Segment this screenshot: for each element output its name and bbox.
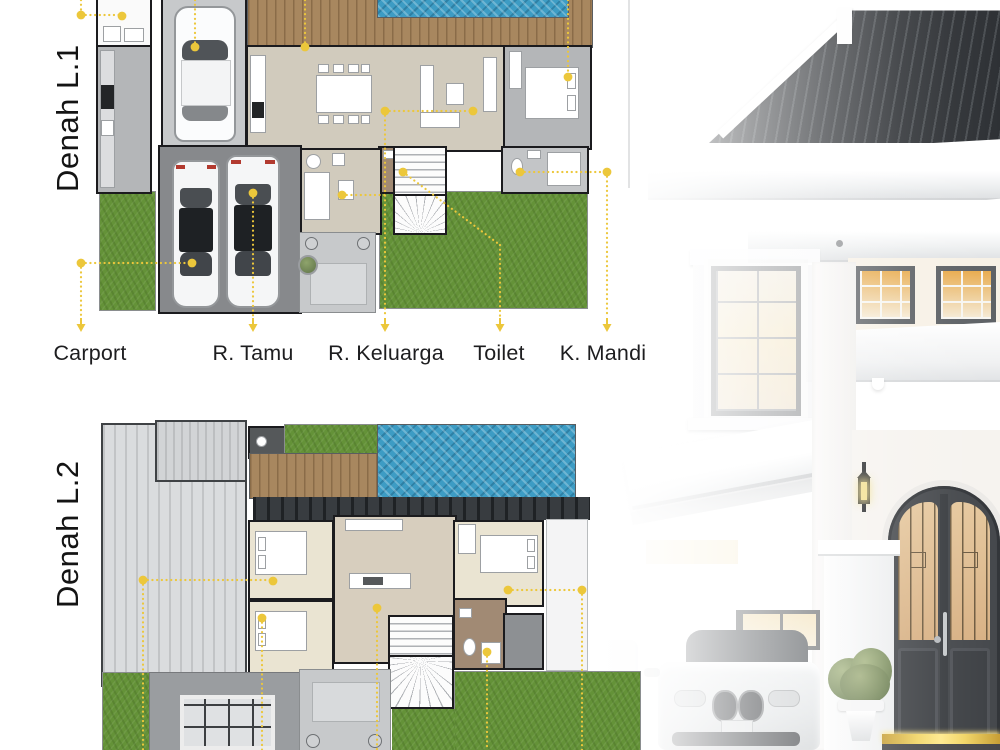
stairs-l2-winder bbox=[390, 657, 452, 707]
door-grille-motif-right bbox=[962, 552, 978, 568]
grass-top bbox=[285, 425, 377, 454]
grass-left bbox=[100, 192, 155, 310]
house-render-photo bbox=[600, 0, 1000, 750]
car-grille-right bbox=[738, 690, 764, 722]
plan-label-kmandi: K. Mandi bbox=[560, 341, 646, 366]
car bbox=[628, 628, 820, 750]
terrace-strip bbox=[547, 520, 587, 670]
carport-car-1 bbox=[172, 160, 220, 308]
car-headlight-right bbox=[768, 690, 800, 707]
master-bedroom-l2 bbox=[455, 522, 542, 605]
door-panel-left bbox=[898, 648, 938, 742]
living-dining-room bbox=[248, 47, 505, 150]
carport bbox=[160, 147, 300, 312]
stairs-l2 bbox=[390, 617, 452, 657]
step-light-strip bbox=[882, 734, 1000, 744]
window-glass bbox=[711, 266, 801, 416]
dining-table bbox=[316, 75, 372, 113]
bathroom-kmandi bbox=[503, 148, 587, 192]
bedroom-3 bbox=[250, 602, 332, 672]
outdoor-kitchen bbox=[250, 428, 285, 457]
door-glass-left bbox=[898, 502, 938, 640]
carport-skylight bbox=[180, 695, 275, 750]
carport-car-2 bbox=[226, 155, 280, 308]
interior-lit-window bbox=[646, 540, 738, 564]
door-glass-right bbox=[950, 502, 990, 640]
step-shadow bbox=[882, 744, 1000, 750]
window-pilaster-left bbox=[693, 265, 707, 423]
upper-deck bbox=[250, 454, 377, 498]
plan-label-carport: Carport bbox=[53, 341, 126, 366]
bedroom-2 bbox=[250, 522, 332, 598]
plant-foliage bbox=[828, 648, 892, 704]
family-room bbox=[300, 150, 380, 233]
kitchen bbox=[98, 47, 150, 192]
master-bedroom bbox=[505, 47, 590, 148]
utility-room bbox=[98, 0, 150, 47]
front-window bbox=[698, 256, 814, 428]
plan2-title: Denah L.2 bbox=[50, 442, 86, 627]
car-grille-left bbox=[712, 690, 738, 722]
plan-label-rkeluarga: R. Keluarga bbox=[328, 341, 444, 366]
car-headlight-left bbox=[674, 690, 706, 707]
plan1-title: Denah L.1 bbox=[50, 38, 86, 198]
grass-under-stairs bbox=[392, 709, 455, 750]
porch-window-left bbox=[855, 266, 915, 324]
plant-pot bbox=[838, 700, 884, 711]
door-handle bbox=[943, 612, 947, 656]
floorplan-level1 bbox=[95, 0, 645, 312]
car-windshield bbox=[686, 630, 808, 666]
swimming-pool-l2 bbox=[378, 425, 575, 505]
porch-plant bbox=[298, 255, 318, 275]
cornice-bracket bbox=[872, 378, 884, 390]
door-knob bbox=[934, 636, 941, 643]
swimming-pool bbox=[378, 0, 568, 17]
floorplan-level2 bbox=[95, 415, 645, 750]
porch-downlight bbox=[836, 240, 843, 247]
door-grille-motif-left bbox=[910, 552, 926, 568]
car-mirror-left bbox=[644, 668, 660, 677]
stairs-l1 bbox=[395, 148, 445, 196]
grass-left-l2 bbox=[103, 673, 150, 750]
pedestal-cap bbox=[818, 540, 900, 556]
window-pediment bbox=[690, 249, 820, 265]
roof-ridge-trim bbox=[837, 8, 852, 44]
front-door bbox=[888, 486, 1000, 750]
sofa bbox=[304, 172, 330, 220]
plan-label-rtamu: R. Tamu bbox=[212, 341, 293, 366]
wardrobe-block bbox=[505, 615, 542, 668]
door-panel-right bbox=[950, 648, 990, 742]
main-cornice bbox=[648, 138, 1000, 200]
site-boundary-line bbox=[628, 0, 630, 188]
wall-lantern-icon bbox=[854, 462, 874, 524]
roof-below-upper bbox=[157, 422, 245, 480]
floorplan-poster: Denah L.1 Denah L.2 bbox=[0, 0, 1000, 750]
garage bbox=[163, 0, 245, 147]
garage-car bbox=[174, 6, 236, 142]
down-arrow-icon bbox=[77, 318, 612, 332]
porch-below bbox=[300, 670, 390, 750]
stairs-l1-winder bbox=[395, 196, 445, 233]
plan-label-toilet: Toilet bbox=[473, 341, 524, 366]
grass-right-l2 bbox=[455, 672, 640, 750]
car-intake bbox=[672, 732, 800, 746]
porch-window-right bbox=[936, 266, 996, 324]
bathroom-l2 bbox=[455, 600, 505, 668]
